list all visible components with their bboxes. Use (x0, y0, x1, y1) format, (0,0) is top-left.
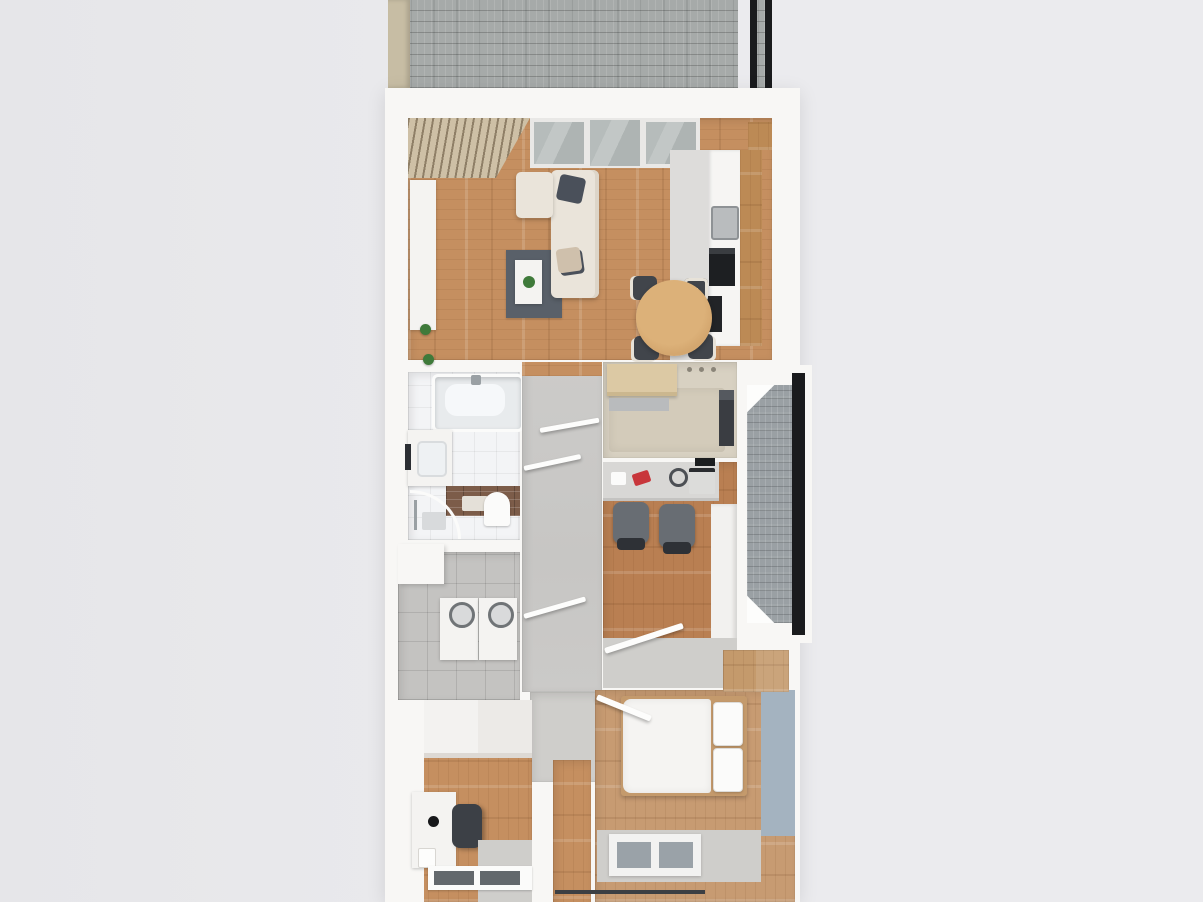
open-door (523, 596, 586, 618)
vanity-washbasin (408, 430, 452, 486)
closet-wardrobe (607, 364, 677, 396)
dryer (479, 598, 517, 660)
glass-pane (590, 120, 640, 166)
potted-plant (423, 354, 434, 365)
beige-cushion (555, 246, 582, 273)
storage-box (611, 472, 626, 485)
pillow (713, 702, 743, 746)
desk-paper (418, 848, 436, 868)
mirror-edge (405, 444, 411, 470)
desk-lamp-icon (428, 816, 439, 827)
bathtub (432, 374, 524, 432)
terrace-railing-icon (750, 0, 757, 88)
lower-window-edge (555, 890, 705, 894)
kitchen-upper-panel (748, 122, 772, 150)
open-door (523, 454, 581, 471)
office (603, 462, 737, 688)
bedroom (595, 690, 795, 902)
blue-accent-wall (761, 690, 795, 836)
oven-icon (709, 248, 735, 286)
table-plant (523, 276, 535, 288)
kids-window (428, 866, 532, 890)
shower (408, 490, 462, 540)
terrace-railing-outer-icon (765, 0, 772, 88)
pillow (713, 748, 743, 792)
laundry-wall-jut (398, 544, 444, 584)
open-door (540, 418, 600, 433)
shower-bench (422, 512, 446, 530)
balcony-floor (747, 385, 794, 623)
laptop-icon (689, 468, 715, 494)
balcony-shadow-bottom (747, 593, 794, 623)
recessed-window (609, 834, 701, 876)
coat-hook-icon (699, 367, 704, 372)
terrace-side-wall (388, 0, 410, 88)
window-pane (659, 842, 693, 868)
bathroom (408, 372, 520, 540)
washer-lid-icon (449, 602, 475, 628)
balcony-railing-icon (792, 373, 805, 635)
balcony (742, 365, 812, 643)
dark-cushion (556, 174, 587, 205)
kids-wardrobe (424, 700, 532, 758)
lower-hall (553, 760, 591, 902)
coat-hook-icon (711, 367, 716, 372)
black-device (695, 458, 715, 466)
potted-plant (420, 324, 431, 335)
dining-table (636, 280, 712, 356)
glass-pane (534, 122, 584, 164)
bathtub-basin (445, 384, 505, 416)
bedroom-wardrobe (723, 650, 789, 692)
faucet-icon (471, 375, 481, 385)
hall-threshold (522, 362, 602, 376)
wood-slat-wall (408, 118, 530, 178)
shower-pipe-icon (414, 500, 417, 530)
terrace-floor (410, 0, 738, 88)
apartment-shell (385, 88, 800, 902)
office-chair (613, 502, 649, 544)
living-room (408, 118, 772, 360)
shoe-shelf (609, 398, 669, 411)
office-chair (659, 504, 695, 548)
walk-in-closet (603, 362, 737, 458)
balcony-shadow-top (747, 385, 794, 415)
tall-cabinet (711, 504, 737, 644)
hallway (522, 362, 602, 692)
terrace-floor-edge (757, 0, 765, 88)
sink-icon (711, 206, 739, 240)
hanging-clothes (719, 390, 734, 446)
laundry-room (398, 552, 520, 700)
window-pane (434, 871, 474, 885)
kitchen-splashback (740, 150, 762, 346)
kids-room (398, 700, 532, 902)
window-pane (617, 842, 651, 868)
floor-plan-render (0, 0, 1203, 902)
dryer-lid-icon (488, 602, 514, 628)
toilet-icon (484, 492, 510, 526)
washing-machine (440, 598, 478, 660)
headphones-icon (669, 468, 688, 487)
washbasin (417, 441, 447, 477)
ottoman (516, 172, 553, 218)
sideboard (410, 180, 436, 330)
coat-hook-icon (687, 367, 692, 372)
window-pane (480, 871, 520, 885)
terrace (388, 0, 772, 88)
